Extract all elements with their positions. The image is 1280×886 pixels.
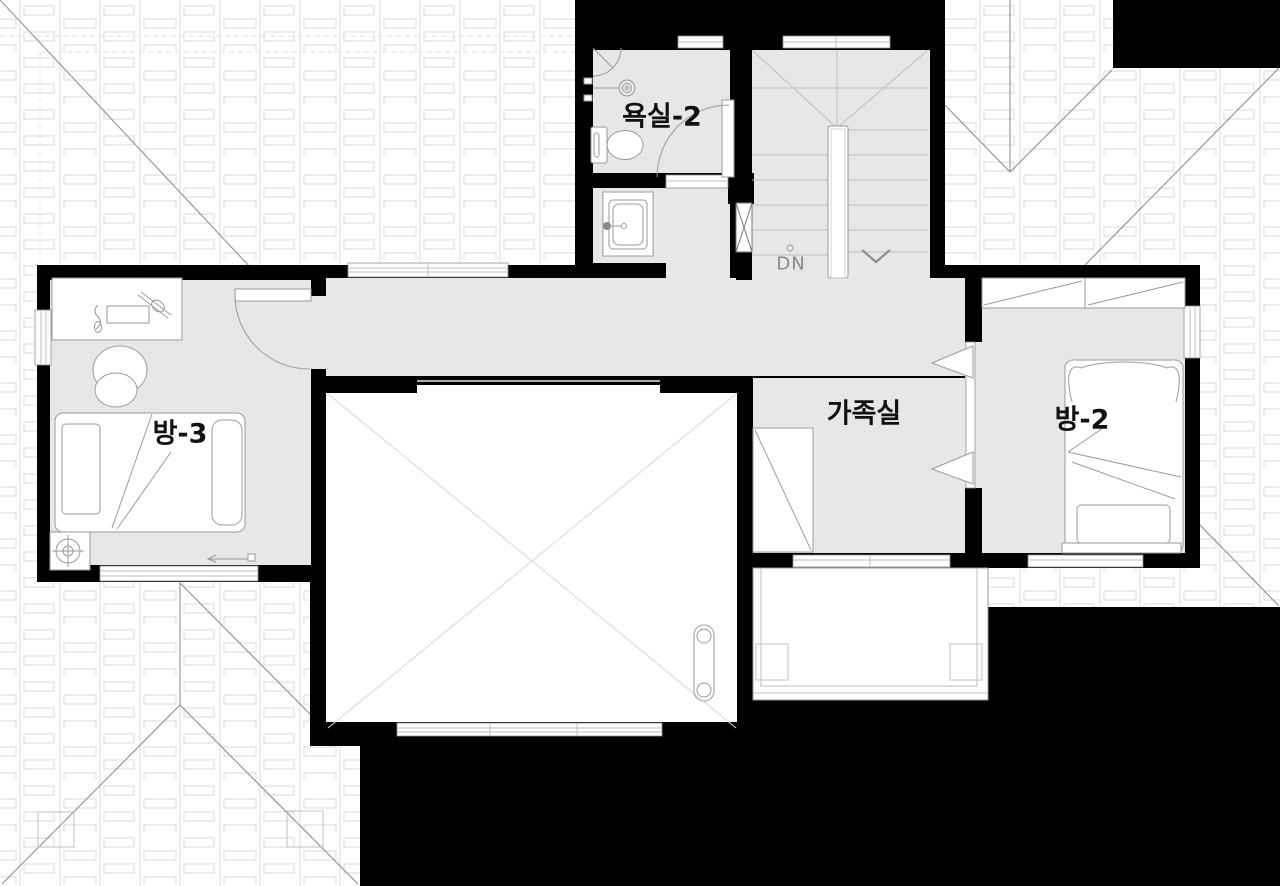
roof-top-left — [0, 0, 575, 267]
desk — [52, 278, 182, 340]
bed-room3 — [55, 413, 245, 532]
window-hallway-top — [348, 263, 508, 277]
floor-hallway — [326, 278, 965, 376]
label-bathroom2: 욕실-2 — [622, 95, 702, 134]
label-room2: 방-2 — [1055, 398, 1110, 437]
window-room3-bottom — [100, 566, 258, 581]
doorway-room3 — [311, 296, 328, 369]
roof-right-strip — [988, 568, 1190, 607]
stair-post — [736, 203, 752, 252]
window-room3-left — [35, 310, 51, 365]
window-stairs-top — [783, 36, 890, 48]
closet — [982, 278, 1185, 308]
floor-corridor — [666, 188, 730, 280]
window-room2-bottom — [1028, 555, 1143, 567]
label-room3: 방-3 — [153, 412, 208, 451]
window-room2-right — [1184, 306, 1200, 358]
window-family-bottom — [793, 555, 950, 567]
floor-drain — [50, 532, 90, 570]
balcony — [753, 568, 988, 700]
bed-room2 — [1062, 360, 1183, 553]
window-void-bottom — [397, 723, 662, 736]
label-stairs-down: DN — [776, 254, 805, 275]
floorplan-page: 욕실-2 방-3 가족실 방-2 DN — [0, 0, 1280, 886]
window-bathroom2-top — [678, 36, 723, 48]
label-family-room: 가족실 — [827, 392, 902, 431]
bathroom-sink — [603, 192, 653, 256]
sofa — [753, 428, 813, 552]
